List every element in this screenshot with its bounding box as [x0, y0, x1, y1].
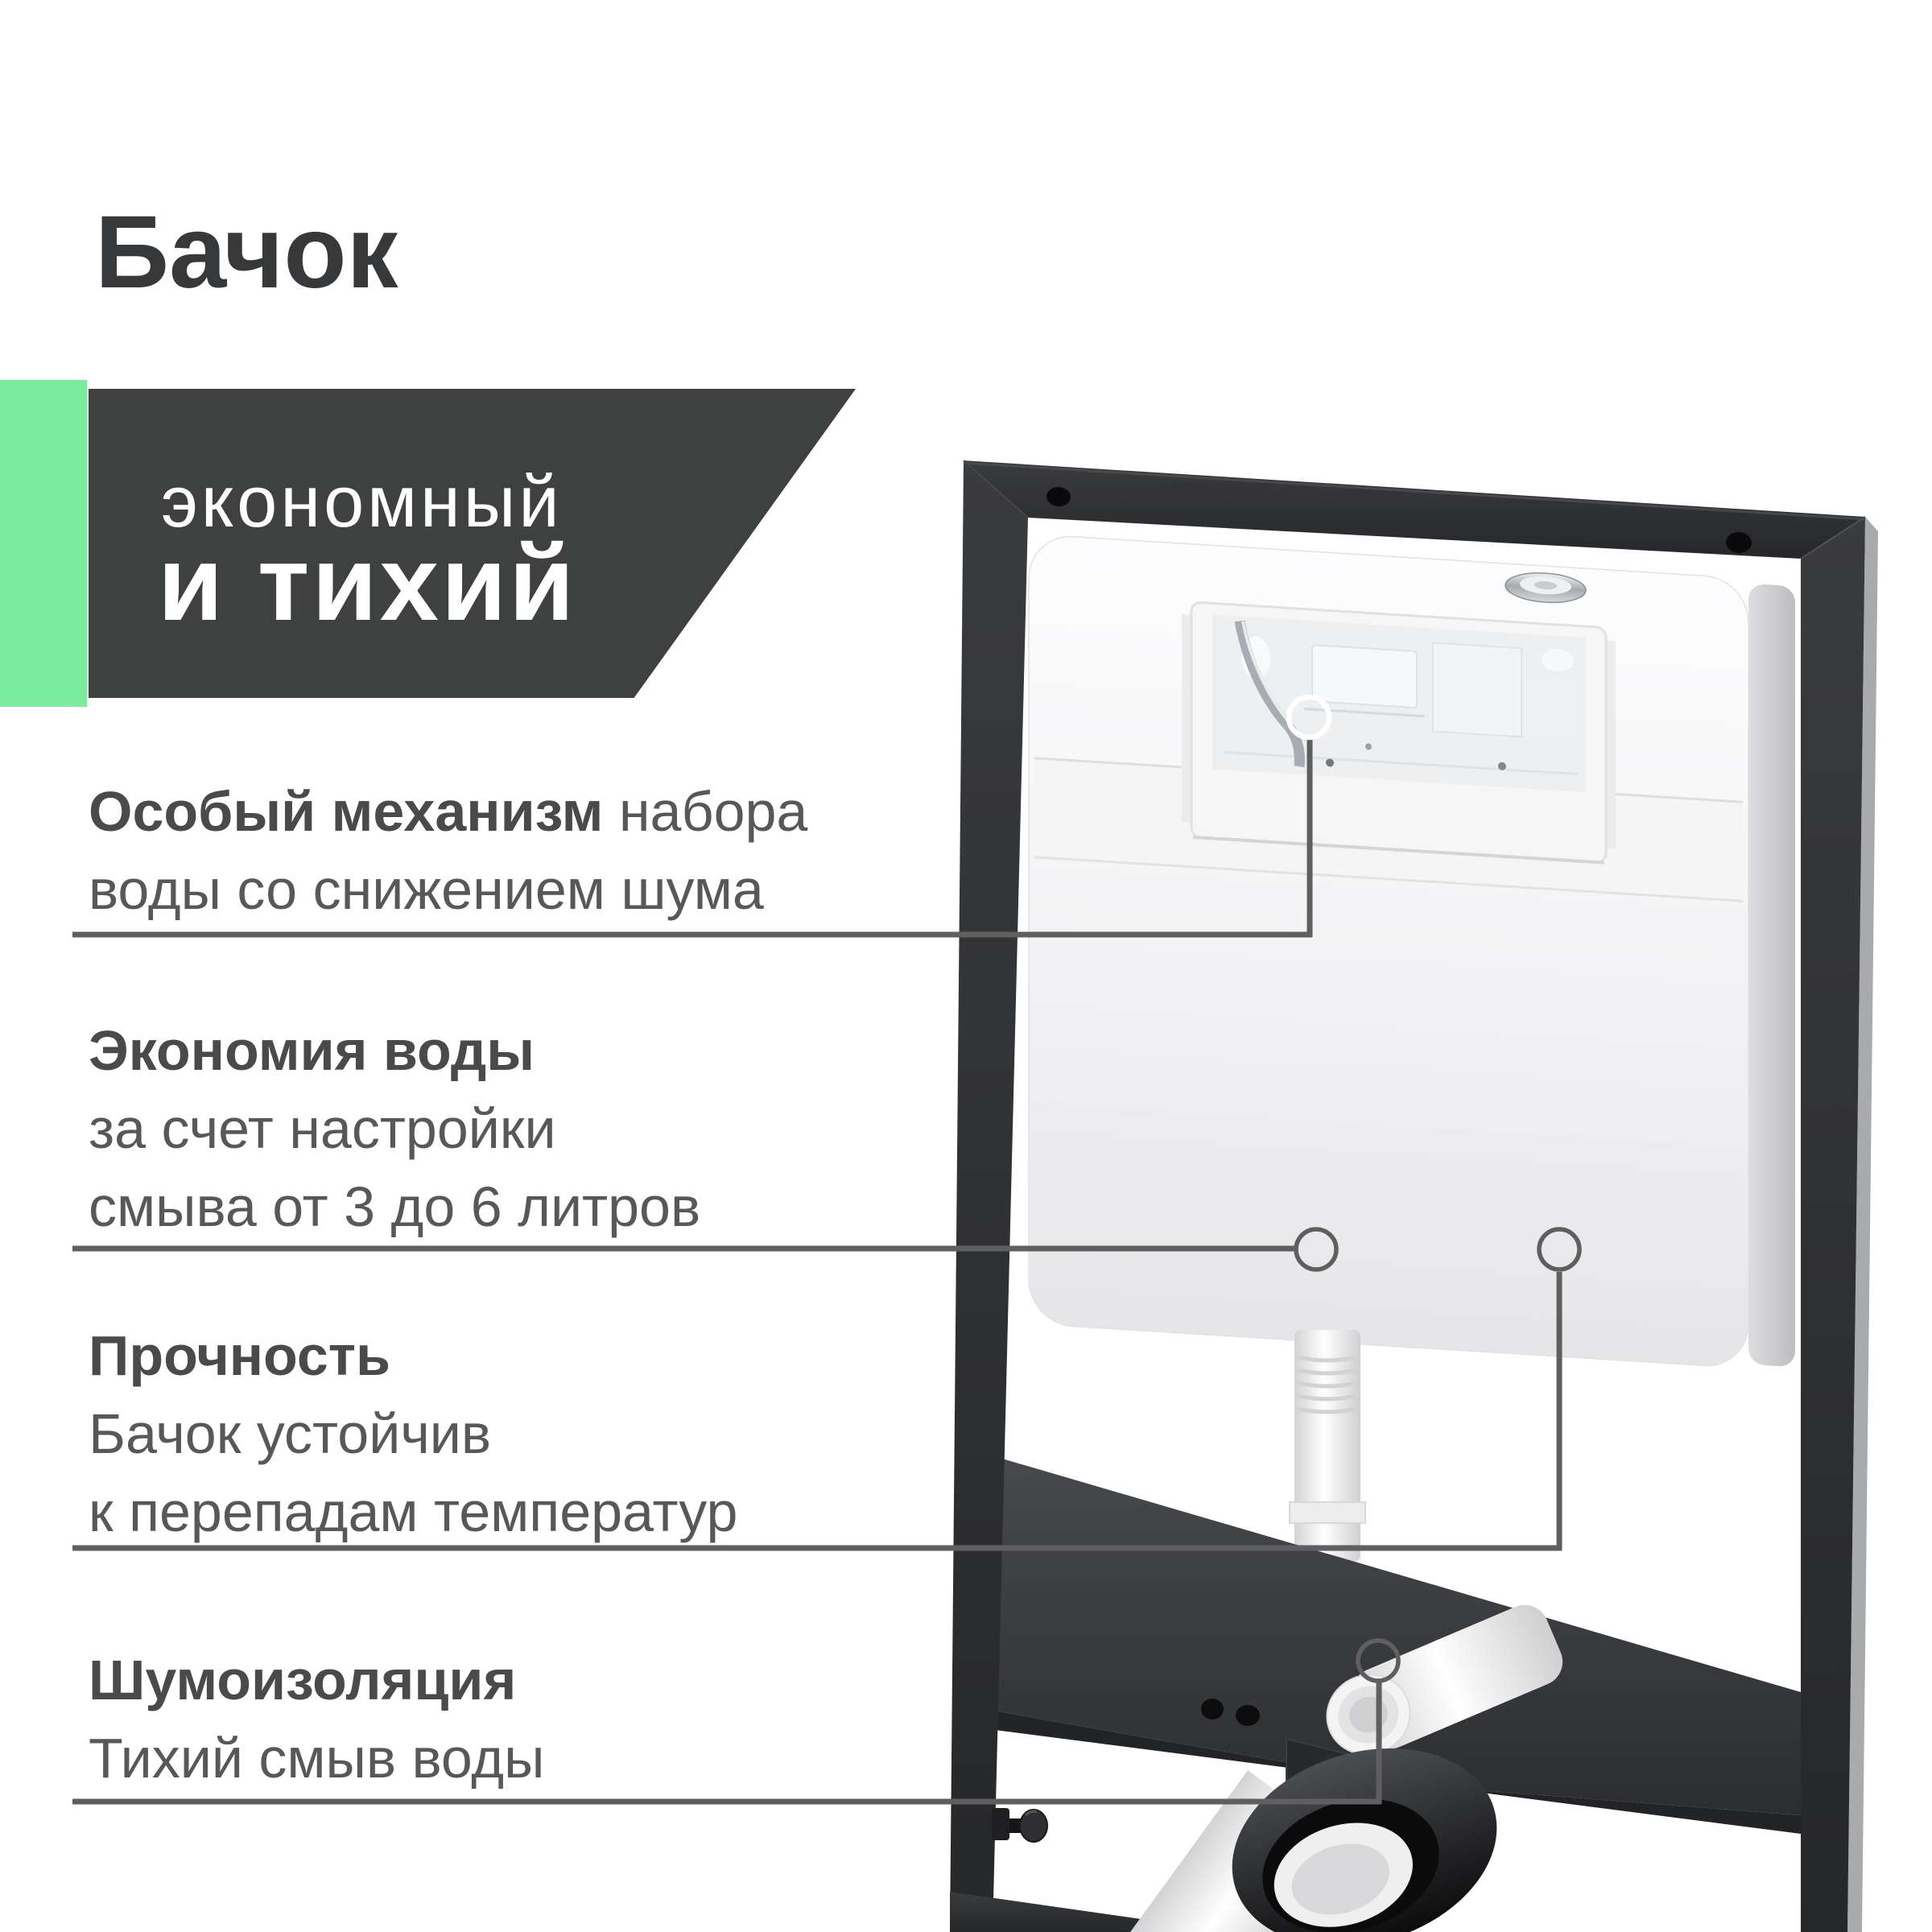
mechanism-detail [1224, 620, 1578, 783]
feature-bold-label: Экономия воды [89, 1019, 535, 1082]
window-frame [1191, 602, 1606, 863]
cistern-side-face [1748, 584, 1795, 1368]
filler-hose [1240, 621, 1299, 767]
frame-top-bar [964, 460, 1865, 559]
feature-special-mechanism: Особый механизм набора воды со снижением… [89, 773, 1135, 929]
feature-banner: экономный и тихий [89, 389, 856, 698]
feature-bold-label: Особый механизм [89, 780, 603, 843]
callout-ring [1358, 1641, 1398, 1681]
flush-mechanism-window [1182, 601, 1616, 863]
panel-hole [1201, 1699, 1224, 1719]
frame-right-rail [1801, 517, 1865, 1932]
accent-green-bar [0, 380, 87, 707]
feature-water-saving: Экономия воды за счет настройки смыва от… [89, 1012, 1135, 1246]
frame-miter-seam [964, 460, 1028, 518]
flush-pipe [1290, 1330, 1365, 1562]
feature-bold-label: Прочность [89, 1324, 390, 1387]
filler-cap [1505, 571, 1586, 605]
window-glass [1212, 614, 1586, 792]
callout-ring [1296, 1229, 1336, 1269]
cistern-front-face [1029, 534, 1748, 1368]
feature-text: за счет настройки смыва от 3 до 6 литров [89, 1097, 700, 1238]
frame-screw-hole [1725, 531, 1752, 554]
feature-noise-insulation: Шумоизоляция Тихий смыв воды [89, 1641, 1135, 1798]
concealed-cistern [1029, 534, 1795, 1371]
ledge-shadow-line [1034, 857, 1743, 902]
callout-ring [1289, 697, 1329, 737]
feature-bold-label: Шумоизоляция [89, 1649, 516, 1711]
window-flange [1182, 614, 1193, 823]
frame-rail-edge-highlight [1847, 517, 1878, 1932]
frame-miter-seam [1801, 517, 1865, 559]
drain-collar [1125, 1717, 1521, 1932]
panel-hole [1236, 1705, 1260, 1726]
window-sill-line [1193, 837, 1604, 863]
page-title: Бачок [95, 201, 398, 304]
adjuster-bolt [992, 1808, 1047, 1842]
mounting-bracket [1286, 1739, 1415, 1842]
frame-bottom-bar [950, 1892, 1232, 1932]
frame-screw-hole [1046, 486, 1071, 507]
frame-top-highlight [964, 463, 1865, 519]
feature-text: Тихий смыв воды [89, 1727, 544, 1790]
window-flange [1604, 641, 1616, 849]
cistern-seam-line [1034, 1107, 1743, 1151]
pipe-joint [1290, 1502, 1365, 1523]
feature-durability: Прочность Бачок устойчив к перепадам тем… [89, 1317, 1135, 1551]
product-infographic: Бачок экономный и тихий Особый механизм … [0, 0, 1932, 1932]
callout-ring [1539, 1229, 1579, 1269]
drain-pipe [1125, 1770, 1358, 1932]
feature-text: Бачок устойчив к перепадам температур [89, 1402, 737, 1543]
drain-elbow [1314, 1597, 1571, 1769]
ledge-shadow-line [1034, 758, 1743, 803]
banner-line-2: и тихий [158, 530, 576, 637]
cistern-ledge [1034, 758, 1743, 902]
